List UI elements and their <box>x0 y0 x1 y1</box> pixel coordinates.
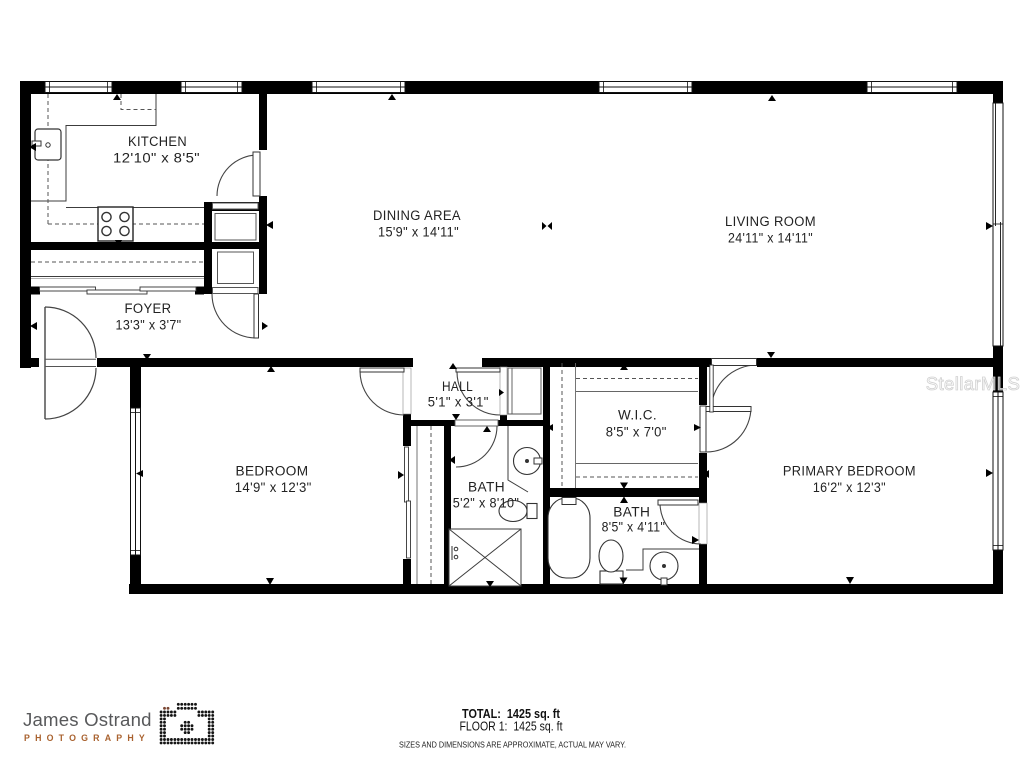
svg-text:8'5" x 7'0": 8'5" x 7'0" <box>606 425 667 441</box>
svg-text:PRIMARY BEDROOM: PRIMARY BEDROOM <box>783 464 916 480</box>
svg-text:W.I.C.: W.I.C. <box>618 408 657 424</box>
svg-text:5'1" x 3'1": 5'1" x 3'1" <box>428 395 489 411</box>
svg-text:FOYER: FOYER <box>125 301 172 317</box>
svg-text:James Ostrand: James Ostrand <box>23 709 152 730</box>
svg-text:8'5" x 4'11": 8'5" x 4'11" <box>602 520 666 536</box>
svg-text:BATH: BATH <box>468 480 505 496</box>
svg-text:12'10" x 8'5": 12'10" x 8'5" <box>113 151 200 167</box>
svg-text:14'9" x 12'3": 14'9" x 12'3" <box>235 480 312 496</box>
svg-text:HALL: HALL <box>442 379 473 395</box>
svg-text:24'11" x 14'11": 24'11" x 14'11" <box>728 231 813 247</box>
svg-text:15'9" x 14'11": 15'9" x 14'11" <box>378 225 459 241</box>
svg-text:KITCHEN: KITCHEN <box>128 134 187 150</box>
svg-text:13'3" x 3'7": 13'3" x 3'7" <box>116 318 182 334</box>
svg-text:5'2" x 8'10": 5'2" x 8'10" <box>453 496 520 512</box>
svg-text:BEDROOM: BEDROOM <box>236 464 309 480</box>
svg-text:LIVING ROOM: LIVING ROOM <box>725 214 816 230</box>
svg-text:DINING AREA: DINING AREA <box>373 208 461 224</box>
svg-text:16'2" x 12'3": 16'2" x 12'3" <box>813 480 886 496</box>
svg-text:PHOTOGRAPHY: PHOTOGRAPHY <box>24 733 150 743</box>
svg-text:BATH: BATH <box>613 505 650 521</box>
svg-text:SIZES AND DIMENSIONS ARE APPRO: SIZES AND DIMENSIONS ARE APPROXIMATE, AC… <box>399 741 626 750</box>
svg-text:FLOOR 1: 1425 sq. ft: FLOOR 1: 1425 sq. ft <box>460 720 563 734</box>
svg-text:StellarMLS: StellarMLS <box>926 373 1020 394</box>
